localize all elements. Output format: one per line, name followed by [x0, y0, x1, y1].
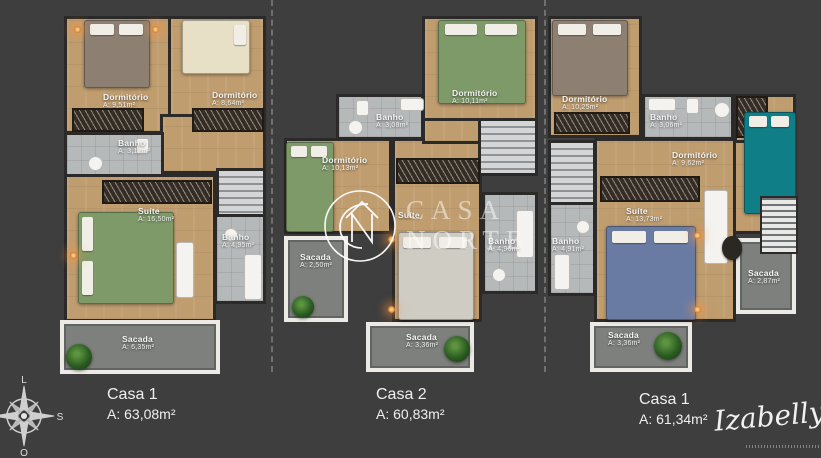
room-label: Suíte: [398, 210, 420, 220]
plant: [66, 344, 92, 370]
room-label: Banho A: 4,96m²: [488, 236, 520, 255]
floor-plan-canvas: Dormitório A: 9,51m² Dormitório A: 8,64m…: [0, 0, 821, 458]
room-label: Dormitório A: 9,62m²: [672, 150, 717, 169]
plant: [292, 296, 314, 318]
bed: [78, 212, 174, 304]
room-label: Dormitório A: 10,13m²: [322, 155, 367, 174]
room-label: Dormitório A: 10,11m²: [452, 88, 497, 107]
house-area: A: 61,34m²: [639, 411, 707, 427]
room-label: Banho A: 3,06m²: [650, 112, 682, 131]
room-label: Banho A: 3,12m²: [118, 138, 150, 157]
chair: [722, 236, 742, 260]
house-caption-middle: Casa 2 A: 60,83m²: [376, 386, 444, 422]
stairs: [548, 140, 596, 206]
stairs: [216, 168, 266, 218]
compass-rose-icon: L S O: [0, 374, 66, 458]
room-label: Dormitório A: 8,64m²: [212, 90, 257, 109]
stairs: [478, 118, 538, 176]
house-name: Casa 1: [107, 386, 175, 404]
plant: [654, 332, 682, 360]
lamp: [152, 26, 159, 33]
lamp: [70, 252, 77, 259]
bathtub: [244, 254, 262, 300]
room-label: Dormitório A: 9,51m²: [103, 92, 148, 111]
shower: [714, 102, 730, 118]
compass-letter-right: S: [57, 412, 64, 423]
bed: [398, 232, 474, 320]
chaise: [176, 242, 194, 298]
room-label: Banho A: 3,08m²: [376, 112, 408, 131]
room-label: Banho A: 4,95m²: [222, 232, 254, 251]
sink: [88, 156, 103, 171]
wardrobe: [192, 108, 264, 132]
toilet: [492, 268, 506, 282]
house-name: Casa 2: [376, 386, 444, 404]
lamp: [74, 26, 81, 33]
compass-letter-top: L: [21, 375, 27, 386]
lamp: [694, 306, 701, 313]
sink: [648, 98, 676, 111]
sink: [400, 98, 424, 111]
bed: [84, 20, 150, 88]
room-label: Sacada A: 2,87m²: [748, 268, 780, 287]
bed: [606, 226, 696, 320]
shelf: [760, 196, 798, 254]
closet: [72, 108, 144, 132]
lamp: [388, 306, 395, 313]
bathtub: [554, 254, 570, 290]
room-label: Sacada A: 6,35m²: [122, 334, 154, 353]
room-label: Dormitório A: 10,25m²: [562, 94, 607, 113]
shower: [348, 120, 363, 135]
house-name: Casa 1: [639, 391, 707, 409]
signature: Izabelly: [713, 395, 821, 438]
room-label: Sacada A: 2,50m²: [300, 252, 332, 271]
unit-divider-left: [271, 0, 273, 372]
toilet: [686, 98, 699, 114]
suite-closet: [102, 180, 212, 204]
house-caption-right: Casa 1 A: 61,34m²: [639, 391, 707, 427]
room-label: Suíte A: 16,50m²: [138, 206, 174, 225]
unit-divider-right: [544, 0, 546, 372]
suite-closet: [396, 158, 480, 184]
house-area: A: 60,83m²: [376, 406, 444, 422]
house-caption-left: Casa 1 A: 63,08m²: [107, 386, 175, 422]
toilet: [356, 100, 369, 116]
room-label: Sacada A: 3,36m²: [406, 332, 438, 351]
bed: [552, 20, 628, 96]
room-label: Sacada A: 3,36m²: [608, 330, 640, 349]
signature-caption: [746, 445, 821, 448]
sink: [576, 220, 590, 234]
house-area: A: 63,08m²: [107, 406, 175, 422]
lamp: [694, 232, 701, 239]
room-label: Suíte A: 13,73m²: [626, 206, 662, 225]
suite-closet: [600, 176, 700, 202]
hallway: [422, 118, 482, 144]
plant: [444, 336, 470, 362]
bed: [182, 20, 250, 74]
closet: [554, 112, 630, 134]
lamp: [388, 236, 395, 243]
room-label: Banho A: 4,91m²: [552, 236, 584, 255]
compass-letter-bottom: O: [20, 448, 28, 458]
